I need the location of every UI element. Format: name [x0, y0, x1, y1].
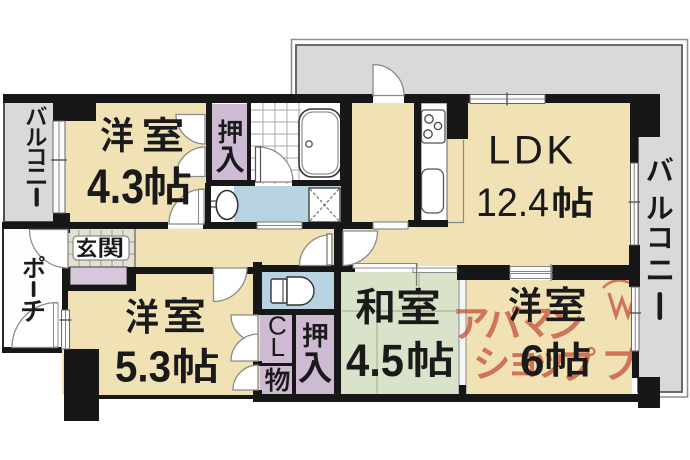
svg-text:L: L: [271, 332, 285, 362]
svg-text:12.4: 12.4: [476, 181, 549, 225]
svg-text:4.5: 4.5: [346, 335, 404, 386]
svg-text:6: 6: [520, 337, 544, 386]
svg-text:LDK: LDK: [488, 129, 573, 173]
svg-text:4.3: 4.3: [87, 161, 144, 214]
svg-text:5.3: 5.3: [115, 343, 171, 392]
